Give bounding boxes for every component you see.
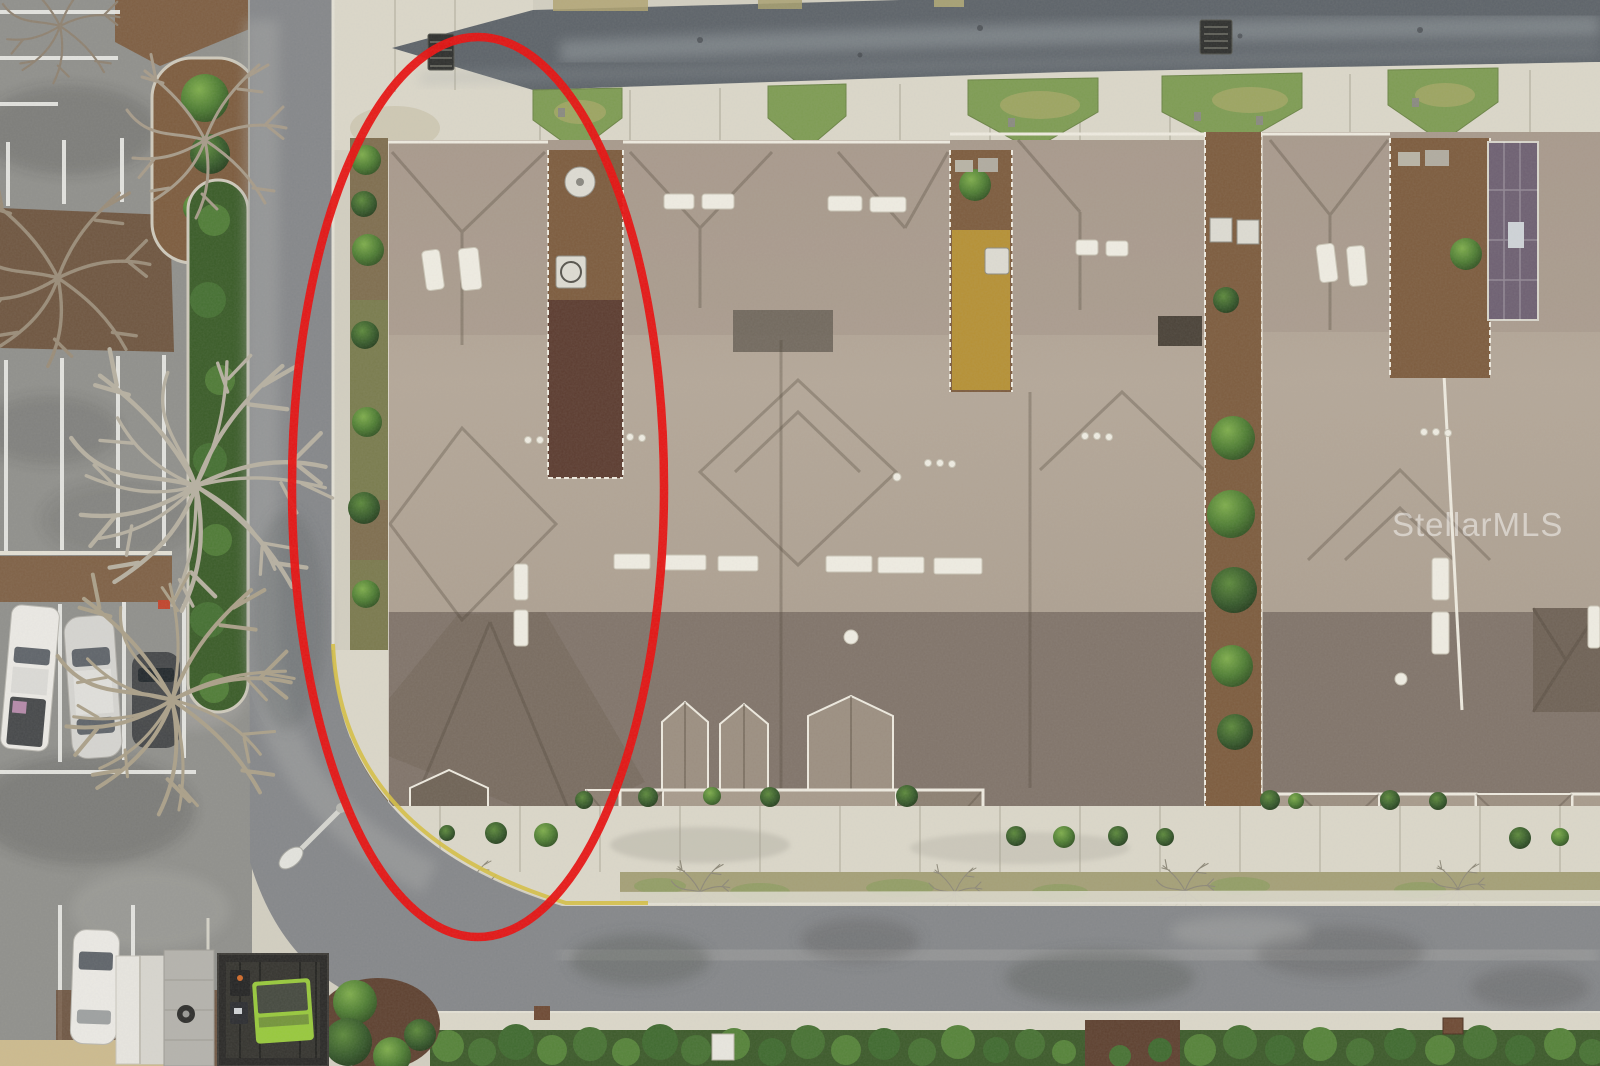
aerial-scene [0, 0, 1600, 1066]
photo-grain-overlay [0, 0, 1600, 1066]
aerial-photo: StellarMLS [0, 0, 1600, 1066]
